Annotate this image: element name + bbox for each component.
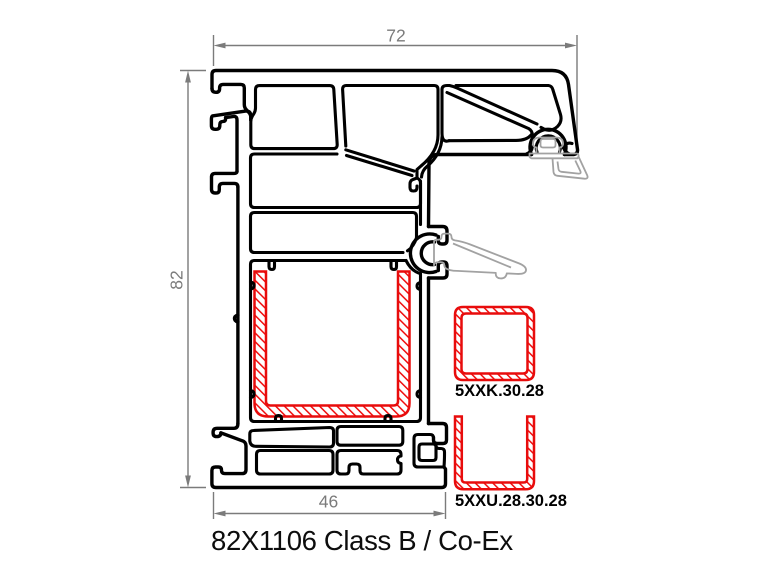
svg-text:5XXU.28.30.28: 5XXU.28.30.28 — [455, 492, 567, 510]
svg-text:72: 72 — [386, 26, 405, 46]
svg-text:82: 82 — [167, 270, 187, 289]
svg-text:82X1106 Class B / Co-Ex: 82X1106 Class B / Co-Ex — [211, 525, 513, 556]
svg-text:5XXK.30.28: 5XXK.30.28 — [455, 382, 544, 400]
svg-text:46: 46 — [319, 492, 338, 512]
